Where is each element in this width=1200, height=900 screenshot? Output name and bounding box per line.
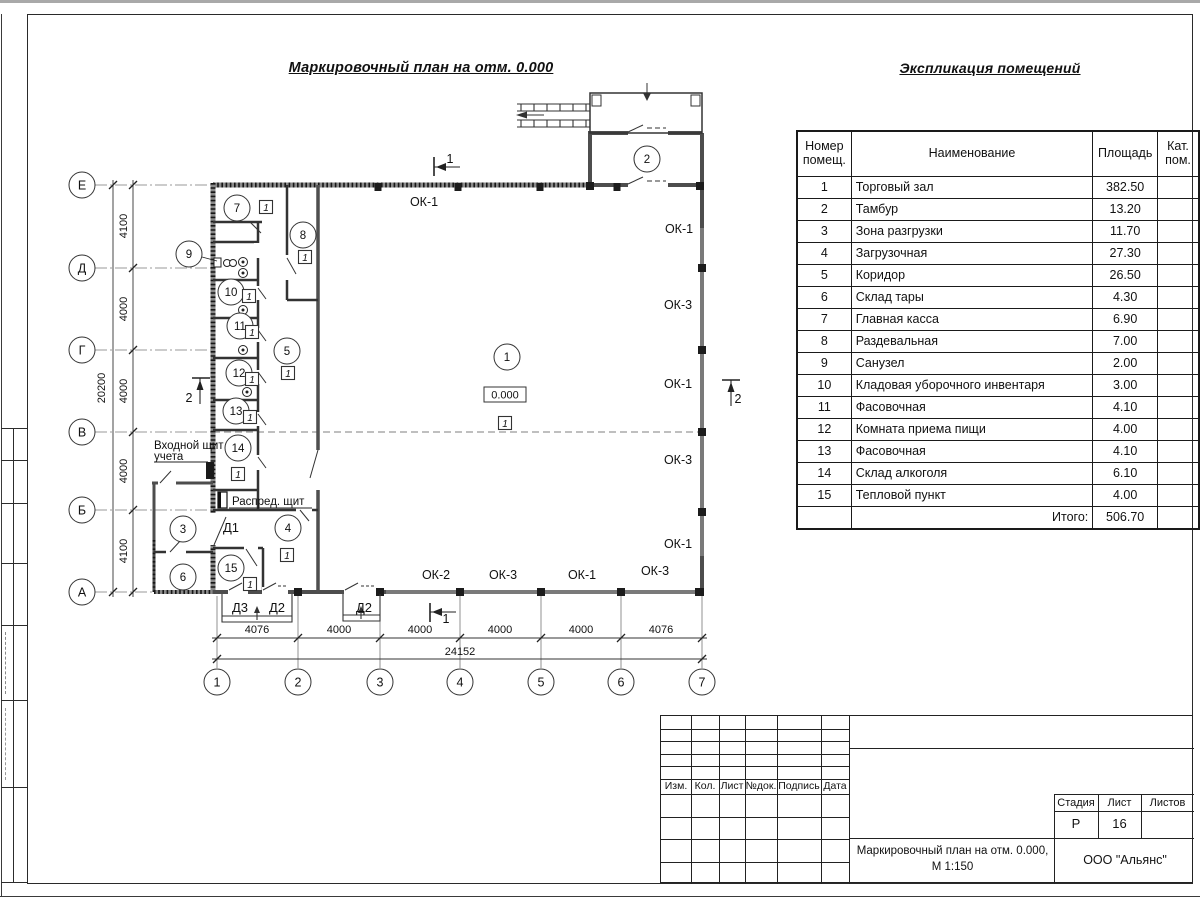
floor-type-number: 1 [249, 375, 255, 386]
tb-line [849, 716, 850, 884]
cell-area: 4.00 [1093, 485, 1158, 507]
cell-name: Кладовая уборочного инвентаря [851, 375, 1093, 397]
cell-area: 27.30 [1093, 243, 1158, 265]
entrance-canopy [590, 83, 702, 133]
tb-line [661, 754, 849, 755]
tb-company: ООО "Альянс" [1056, 852, 1194, 869]
cell-category [1158, 331, 1199, 353]
section-marks [192, 157, 740, 622]
room-number-6: 6 [180, 572, 186, 584]
cell-area: 11.70 [1093, 221, 1158, 243]
room-number-5: 5 [284, 346, 290, 358]
room-number-13: 13 [230, 406, 243, 418]
cell-category [1158, 287, 1199, 309]
cell-area: 26.50 [1093, 265, 1158, 287]
section-label-2: 2 [186, 391, 193, 405]
dist-panel-label: Распред. щит [232, 496, 305, 508]
door-label-Д2: Д2 [269, 600, 285, 615]
cell-category [1158, 309, 1199, 331]
total-empty-cell [797, 507, 851, 530]
axis-label-Б: Б [78, 504, 86, 518]
door-label-Д1: Д1 [223, 520, 239, 535]
cell-name: Раздевальная [851, 331, 1093, 353]
table-row: 12Комната приема пищи4.00 [797, 419, 1199, 441]
cell-area: 6.90 [1093, 309, 1158, 331]
dim-text-left: 4000 [118, 459, 130, 483]
section-label-1: 1 [443, 612, 450, 626]
cell-area: 2.00 [1093, 353, 1158, 375]
tb-sheets-label: Листов [1141, 795, 1194, 811]
col-header-name: Наименование [851, 131, 1093, 177]
entry-panel-symbol [206, 462, 214, 479]
tb-doc-title: Маркировочный план на отм. 0.000, М 1:15… [851, 844, 1054, 875]
tb-line [1054, 811, 1194, 812]
tb-line [661, 794, 849, 795]
cell-number: 5 [797, 265, 851, 287]
tb-sheet-label: Лист [1098, 795, 1141, 811]
door-label-Д2: Д2 [356, 600, 372, 615]
room-number-12: 12 [233, 368, 246, 380]
dim-text-bottom: 4000 [488, 624, 512, 636]
cell-number: 12 [797, 419, 851, 441]
cell-number: 3 [797, 221, 851, 243]
cell-name: Склад алкоголя [851, 463, 1093, 485]
dim-text-left: 4000 [118, 379, 130, 403]
floor-type-number: 1 [235, 470, 241, 481]
cell-name: Тамбур [851, 199, 1093, 221]
cell-number: 7 [797, 309, 851, 331]
room-schedule-table: Номер помещ. Наименование Площадь Кат. п… [796, 130, 1200, 530]
cell-number: 14 [797, 463, 851, 485]
entry-panel-label2: учета [154, 451, 184, 463]
floor-type-number: 1 [246, 292, 252, 303]
cell-area: 13.20 [1093, 199, 1158, 221]
room-number-11: 11 [234, 321, 246, 333]
cell-number: 6 [797, 287, 851, 309]
cell-number: 8 [797, 331, 851, 353]
window-label-ОК-3: ОК-3 [664, 453, 692, 467]
cell-area: 6.10 [1093, 463, 1158, 485]
table-row: 11Фасовочная4.10 [797, 397, 1199, 419]
table-row: 4Загрузочная27.30 [797, 243, 1199, 265]
cell-name: Тепловой пункт [851, 485, 1093, 507]
window-label-ОК-1: ОК-1 [410, 195, 438, 209]
col-header-category: Кат. пом. [1158, 131, 1199, 177]
cell-number: 13 [797, 441, 851, 463]
window-label-ОК-1: ОК-1 [568, 568, 596, 582]
title-block: Изм. Кол. Лист №док. Подпись Дата Стадия… [660, 715, 1193, 883]
axis-label-7: 7 [699, 676, 706, 690]
axis-label-Е: Е [78, 179, 86, 193]
cell-category [1158, 265, 1199, 287]
table-row: 1Торговый зал382.50 [797, 177, 1199, 199]
tb-line [661, 817, 849, 818]
cell-area: 4.10 [1093, 397, 1158, 419]
room-number-15: 15 [225, 563, 238, 575]
tb-col-list: Лист [719, 779, 745, 794]
table-row: 14Склад алкоголя6.10 [797, 463, 1199, 485]
cell-number: 10 [797, 375, 851, 397]
cell-area: 4.00 [1093, 419, 1158, 441]
axis-label-Г: Г [79, 344, 86, 358]
room-number-9: 9 [186, 249, 192, 261]
dim-total-bottom: 24152 [445, 646, 476, 658]
cell-number: 15 [797, 485, 851, 507]
cell-number: 4 [797, 243, 851, 265]
room-number-2: 2 [644, 154, 650, 166]
table-row: 7Главная касса6.90 [797, 309, 1199, 331]
axis-label-А: А [78, 586, 87, 600]
floor-type-number: 1 [284, 551, 290, 562]
floor-type-number: 1 [247, 413, 253, 424]
total-empty-cat [1158, 507, 1199, 530]
dim-text-left: 4100 [118, 214, 130, 238]
tb-col-podpis: Подпись [777, 779, 821, 794]
axis-label-6: 6 [618, 676, 625, 690]
window-label-ОК-3: ОК-3 [489, 568, 517, 582]
dim-text-bottom: 4000 [327, 624, 351, 636]
svg-text:0.000: 0.000 [491, 390, 519, 402]
tb-doc-title-line2: М 1:150 [851, 860, 1054, 876]
cell-category [1158, 397, 1199, 419]
section-label-2: 2 [735, 392, 742, 406]
table-row: 2Тамбур13.20 [797, 199, 1199, 221]
window-label-ОК-2: ОК-2 [422, 568, 450, 582]
tb-line [661, 862, 849, 863]
axis-label-1: 1 [214, 676, 221, 690]
tb-line [661, 766, 849, 767]
dim-text-left: 4000 [118, 297, 130, 321]
floor-type-number: 1 [249, 328, 255, 339]
cell-area: 4.10 [1093, 441, 1158, 463]
cell-category [1158, 221, 1199, 243]
cell-number: 2 [797, 199, 851, 221]
cell-name: Фасовочная [851, 441, 1093, 463]
dim-text-left: 4100 [118, 539, 130, 563]
plan-labels: ЕДГВБА1234567410040004000400041002020040… [69, 146, 742, 695]
col-header-number: Номер помещ. [797, 131, 851, 177]
cell-name: Зона разгрузки [851, 221, 1093, 243]
window-label-ОК-1: ОК-1 [664, 537, 692, 551]
cell-category [1158, 463, 1199, 485]
cell-category [1158, 441, 1199, 463]
table-row: 8Раздевальная7.00 [797, 331, 1199, 353]
cell-category [1158, 243, 1199, 265]
cell-category [1158, 375, 1199, 397]
floor-type-number: 1 [263, 203, 269, 214]
table-row: 3Зона разгрузки11.70 [797, 221, 1199, 243]
axis-label-2: 2 [295, 676, 302, 690]
dim-text-bottom: 4000 [569, 624, 593, 636]
table-row: 6Склад тары4.30 [797, 287, 1199, 309]
room-number-3: 3 [180, 524, 186, 536]
tb-col-kol: Кол. [691, 779, 719, 794]
cell-category [1158, 419, 1199, 441]
window-label-ОК-3: ОК-3 [664, 298, 692, 312]
table-total-row: Итого: 506.70 [797, 507, 1199, 530]
tb-stage-value: Р [1054, 816, 1098, 831]
axis-label-4: 4 [457, 676, 464, 690]
cell-area: 3.00 [1093, 375, 1158, 397]
tb-col-izm: Изм. [661, 779, 691, 794]
window-label-ОК-1: ОК-1 [664, 377, 692, 391]
window-label-ОК-3: ОК-3 [641, 564, 669, 578]
cell-area: 4.30 [1093, 287, 1158, 309]
door-label-Д3: Д3 [232, 600, 248, 615]
axis-label-Д: Д [78, 262, 87, 276]
elevation-mark: 0.000 [484, 387, 526, 402]
axis-label-5: 5 [538, 676, 545, 690]
floor-type-number: 1 [285, 369, 291, 380]
drawing-sheet: Маркировочный план на отм. 0.000 Эксплик… [0, 0, 1200, 900]
cell-name: Торговый зал [851, 177, 1093, 199]
tb-line [661, 741, 849, 742]
tb-sheet-value: 16 [1098, 816, 1141, 831]
table-row: 15Тепловой пункт4.00 [797, 485, 1199, 507]
room-number-8: 8 [300, 230, 306, 242]
entrance-ramp [516, 104, 590, 127]
cell-number: 1 [797, 177, 851, 199]
room-number-10: 10 [225, 287, 238, 299]
window-label-ОК-1: ОК-1 [665, 222, 693, 236]
cell-name: Главная касса [851, 309, 1093, 331]
cell-number: 11 [797, 397, 851, 419]
cell-name: Фасовочная [851, 397, 1093, 419]
total-label: Итого: [851, 507, 1093, 530]
cell-name: Коридор [851, 265, 1093, 287]
cell-name: Склад тары [851, 287, 1093, 309]
axis-label-3: 3 [377, 676, 384, 690]
cell-name: Комната приема пищи [851, 419, 1093, 441]
cell-name: Загрузочная [851, 243, 1093, 265]
table-row: 9Санузел2.00 [797, 353, 1199, 375]
cell-category [1158, 177, 1199, 199]
cell-area: 7.00 [1093, 331, 1158, 353]
floor-type-number: 1 [247, 580, 253, 591]
dim-total-left: 20200 [96, 373, 108, 404]
table-row: 5Коридор26.50 [797, 265, 1199, 287]
tb-stage-label: Стадия [1054, 795, 1098, 811]
tb-line [661, 729, 849, 730]
room-number-7: 7 [234, 203, 240, 215]
tb-line [661, 839, 849, 840]
dim-text-bottom: 4000 [408, 624, 432, 636]
cell-area: 382.50 [1093, 177, 1158, 199]
section-label-1: 1 [447, 152, 454, 166]
floor-type-number: 1 [502, 419, 508, 430]
tb-col-ndok: №док. [745, 779, 777, 794]
table-row: 10Кладовая уборочного инвентаря3.00 [797, 375, 1199, 397]
tb-col-data: Дата [821, 779, 849, 794]
room-number-4: 4 [285, 523, 292, 535]
tb-line [849, 838, 1194, 839]
cell-category [1158, 199, 1199, 221]
cell-name: Санузел [851, 353, 1093, 375]
cell-category [1158, 485, 1199, 507]
dim-text-bottom: 4076 [649, 624, 673, 636]
tb-doc-title-line1: Маркировочный план на отм. 0.000, [851, 844, 1054, 860]
room-number-14: 14 [232, 443, 245, 455]
cell-category [1158, 353, 1199, 375]
tb-line [849, 748, 1194, 749]
table-row: 13Фасовочная4.10 [797, 441, 1199, 463]
floor-type-number: 1 [302, 253, 308, 264]
cell-number: 9 [797, 353, 851, 375]
dim-text-bottom: 4076 [245, 624, 269, 636]
room-number-1: 1 [504, 352, 510, 364]
total-value: 506.70 [1093, 507, 1158, 530]
col-header-area: Площадь [1093, 131, 1158, 177]
axis-label-В: В [78, 426, 86, 440]
